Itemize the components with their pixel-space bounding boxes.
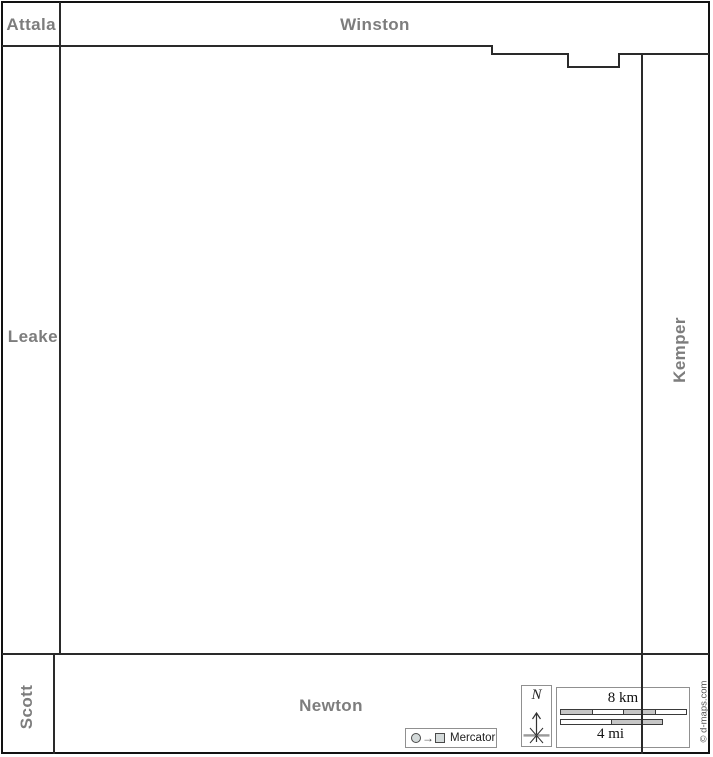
- scale-segment: [561, 720, 611, 724]
- projection-label: Mercator: [450, 732, 495, 744]
- boundary-west: [59, 2, 61, 654]
- label-newton: Newton: [251, 696, 411, 716]
- boundary-south: [2, 653, 709, 655]
- boundary-north-attala: [2, 45, 493, 47]
- north-arrow-icon: [522, 704, 551, 744]
- scale-segment: [592, 710, 624, 714]
- scale-bar-mi: [560, 719, 663, 725]
- boundary-notch-right: [618, 53, 620, 68]
- projection-arrow-icon: →: [422, 732, 434, 744]
- label-kemper: Kemper: [670, 308, 690, 392]
- boundary-north-mid: [491, 53, 569, 55]
- boundary-north-east: [618, 53, 709, 55]
- boundary-notch-bottom: [567, 66, 620, 68]
- county-map: Attala Winston Leake Kemper Scott Newton…: [0, 0, 713, 757]
- scale-segment: [611, 720, 662, 724]
- label-leake: Leake: [1, 327, 58, 347]
- projection-square-icon: [435, 733, 445, 743]
- label-winston: Winston: [295, 15, 455, 35]
- compass-rose: N: [521, 685, 552, 747]
- boundary-east: [641, 53, 643, 754]
- scale-bar-km: [560, 709, 687, 715]
- label-attala: Attala: [0, 15, 56, 35]
- projection-circle-icon: [411, 733, 421, 743]
- scale-bar-box: 8 km 4 mi: [556, 687, 690, 748]
- label-scott: Scott: [17, 667, 37, 747]
- boundary-scott-newton: [53, 655, 55, 754]
- scale-mi-label: 4 mi: [557, 726, 664, 743]
- scale-km-label: 8 km: [557, 690, 689, 707]
- scale-segment: [655, 710, 687, 714]
- map-frame: [1, 1, 710, 754]
- projection-indicator: → Mercator: [405, 728, 497, 748]
- scale-segment: [561, 710, 592, 714]
- dmaps-credit: © d-maps.com: [699, 664, 710, 757]
- compass-north-label: N: [522, 687, 551, 704]
- scale-segment: [623, 710, 655, 714]
